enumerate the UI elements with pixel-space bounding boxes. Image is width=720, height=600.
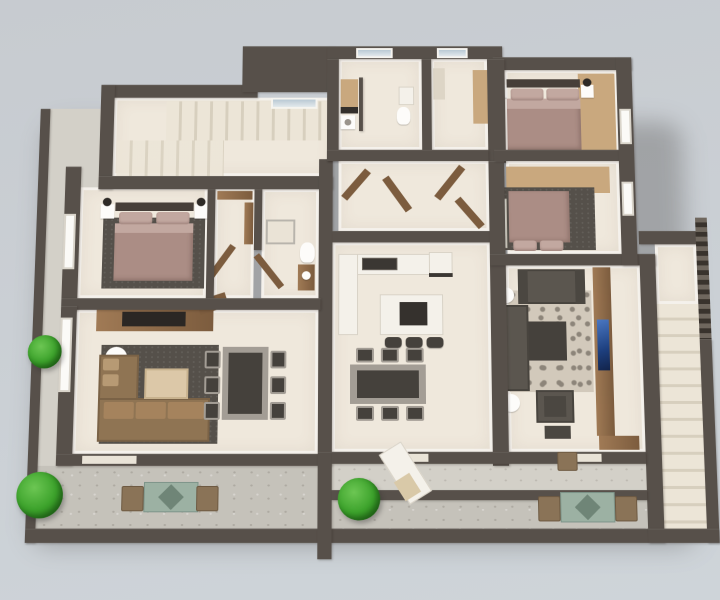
bedroom-3-window bbox=[621, 182, 634, 216]
balcony-parapet bbox=[25, 529, 665, 543]
bedside-lamp bbox=[197, 198, 206, 207]
sofa-top-arm bbox=[575, 269, 586, 304]
wall-block bbox=[242, 46, 335, 92]
outdoor-chair bbox=[196, 486, 219, 511]
island-hob bbox=[400, 302, 428, 325]
kitchen-dining-table-top bbox=[357, 370, 419, 398]
wall bbox=[487, 59, 506, 163]
utility-basin-counter bbox=[399, 87, 415, 105]
master-bed-headboard bbox=[115, 202, 193, 211]
outdoor-chair bbox=[538, 496, 561, 521]
outdoor-chair bbox=[615, 496, 638, 521]
master-bed-pillow bbox=[119, 212, 153, 224]
bar-stool bbox=[406, 337, 423, 348]
toilet bbox=[300, 242, 315, 262]
utility-cabinet bbox=[341, 79, 358, 107]
bedside-lamp bbox=[583, 78, 592, 86]
utility-toilet bbox=[397, 107, 411, 125]
dining-chair bbox=[406, 348, 424, 363]
skylight-window bbox=[271, 98, 317, 109]
sofa-cushion bbox=[103, 402, 133, 419]
stove-front bbox=[429, 273, 453, 277]
balcony-door-left bbox=[82, 456, 137, 464]
outdoor-chair bbox=[121, 486, 144, 511]
nightstand bbox=[100, 204, 114, 218]
dining-chair bbox=[204, 402, 220, 420]
sofa-cushion bbox=[136, 402, 166, 419]
master-bed-sheet-fold bbox=[115, 223, 194, 233]
closet-shelf bbox=[244, 202, 253, 244]
wall bbox=[494, 150, 619, 161]
sofa-cushion bbox=[168, 402, 204, 419]
dining-chair bbox=[356, 348, 374, 363]
sofa-pillow bbox=[103, 359, 119, 371]
bedroom-2-pillow bbox=[546, 88, 579, 100]
sofa-top-arm bbox=[518, 269, 529, 304]
dining-table-left-top bbox=[228, 353, 263, 414]
interior-staircase-lower-flight bbox=[116, 140, 224, 176]
wall bbox=[101, 85, 258, 98]
bar-stool bbox=[385, 337, 402, 348]
bedroom-2-window bbox=[619, 109, 632, 144]
nightstand bbox=[581, 85, 594, 98]
washing-machine-door bbox=[344, 119, 351, 126]
wall bbox=[332, 231, 489, 242]
wall bbox=[422, 59, 432, 150]
coffee-table-right bbox=[528, 321, 567, 360]
terrace-chair bbox=[557, 452, 578, 471]
dining-chair bbox=[381, 406, 399, 421]
master-bed-pillow bbox=[156, 212, 190, 224]
shrub bbox=[338, 478, 381, 521]
balcony-divider-wall bbox=[317, 452, 332, 559]
storage-shelf bbox=[433, 68, 445, 99]
wall bbox=[61, 298, 320, 310]
bedroom-3-pillow bbox=[513, 241, 537, 252]
bedroom-3-bed bbox=[508, 191, 570, 242]
sofa-pillow bbox=[102, 374, 118, 386]
dining-chair bbox=[205, 351, 221, 369]
floor-plan-render bbox=[0, 0, 720, 600]
utility-window bbox=[356, 48, 393, 58]
wall bbox=[493, 57, 632, 70]
kitchen-sink bbox=[362, 258, 397, 270]
bedroom-2-headboard bbox=[507, 79, 580, 87]
vanity-sink bbox=[302, 271, 311, 280]
dining-chair bbox=[270, 376, 286, 394]
ottoman bbox=[545, 426, 571, 439]
dining-chair bbox=[204, 376, 220, 394]
wall bbox=[639, 231, 696, 244]
closet-wardrobe bbox=[217, 191, 252, 200]
utility-counter bbox=[341, 107, 358, 113]
dining-chair bbox=[356, 406, 374, 421]
storage-window bbox=[437, 48, 468, 58]
media-console bbox=[599, 436, 640, 450]
wall bbox=[648, 529, 720, 543]
bedroom-3-pillow bbox=[540, 241, 564, 252]
armchair-cushion bbox=[544, 396, 566, 417]
building-scene bbox=[0, 21, 720, 600]
shower bbox=[266, 220, 296, 245]
tv-screen bbox=[597, 320, 610, 371]
external-stair-landing bbox=[655, 244, 699, 304]
master-bedroom-window bbox=[62, 214, 76, 269]
bedroom-2-pillow bbox=[511, 88, 544, 100]
dining-chair bbox=[270, 402, 286, 420]
coffee-table bbox=[144, 368, 189, 399]
utility-partition bbox=[359, 77, 363, 131]
wall bbox=[327, 150, 489, 161]
wall bbox=[318, 159, 333, 466]
kitchen-counter-left bbox=[338, 254, 358, 335]
dining-chair bbox=[406, 406, 424, 421]
wall bbox=[327, 46, 502, 59]
sideboard-cooktop bbox=[122, 312, 186, 327]
storage-wardrobe bbox=[473, 70, 488, 124]
dining-chair bbox=[270, 351, 286, 369]
entry-terrace-floor bbox=[332, 464, 647, 490]
wall bbox=[254, 189, 263, 250]
wall bbox=[98, 176, 332, 189]
dining-chair bbox=[381, 348, 399, 363]
wall bbox=[327, 59, 339, 161]
bar-stool bbox=[427, 337, 444, 348]
